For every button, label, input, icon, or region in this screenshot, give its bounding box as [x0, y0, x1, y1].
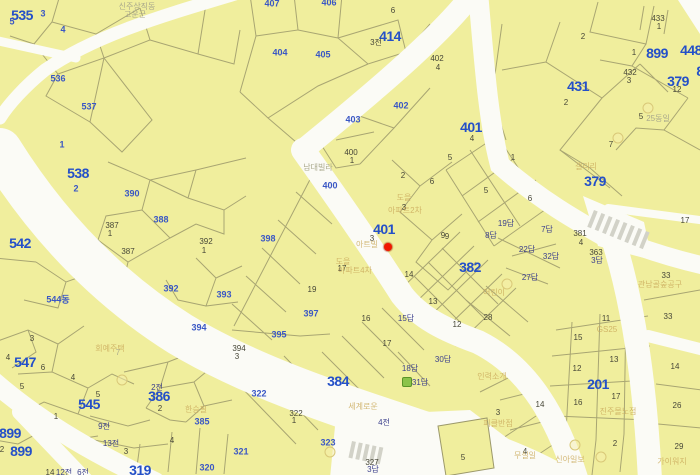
map-label: 15	[574, 334, 583, 342]
map-label: 4전	[378, 419, 390, 427]
map-label: 8	[696, 64, 700, 78]
map-label: 5	[9, 18, 14, 27]
map-label: 2	[158, 405, 162, 413]
map-label: 1	[292, 417, 296, 425]
map-label: 321	[233, 448, 248, 457]
map-label: 도을	[336, 258, 351, 266]
map-label: 9전	[98, 423, 110, 431]
map-label: 3	[40, 10, 45, 19]
map-label: 2전	[151, 384, 163, 392]
map-label: 547	[14, 355, 36, 369]
map-label: 6전	[77, 469, 89, 475]
map-label: 6	[528, 195, 532, 203]
map-label: 406	[321, 0, 336, 8]
poi-circle-icon	[596, 452, 607, 463]
map-label: 2	[581, 33, 585, 41]
map-label: 14	[536, 401, 545, 409]
map-label: 아파트4차	[338, 267, 372, 275]
map-label: 2	[73, 185, 78, 194]
map-label: 392	[163, 285, 178, 294]
map-label: 7	[609, 141, 613, 149]
map-label: 4	[71, 374, 75, 382]
map-label: 4	[170, 437, 174, 445]
map-label: 379	[584, 174, 606, 188]
map-label: 7답	[541, 226, 553, 234]
map-label: 404	[272, 49, 287, 58]
map-label: 1	[54, 413, 58, 421]
map-label: 29	[675, 443, 684, 451]
map-label: 신아일보	[555, 456, 584, 464]
poi-circle-icon	[613, 133, 624, 144]
map-label: 고운군	[124, 11, 146, 19]
map-label: 3	[124, 448, 128, 456]
map-label: 4	[436, 64, 440, 72]
map-label: 31답	[412, 379, 428, 387]
map-label: 414	[379, 29, 401, 43]
map-label: 17	[383, 340, 392, 348]
map-label: 2	[0, 446, 4, 454]
map-label: 관남골숲공구	[638, 281, 682, 289]
map-label: 400	[322, 182, 337, 191]
map-label: 회예주택	[95, 345, 124, 353]
map-label: 544동	[46, 296, 69, 305]
map-label: 899	[646, 46, 668, 60]
map-label: 1	[59, 141, 64, 150]
map-label: 401	[460, 120, 482, 134]
map-label: 한승필	[185, 406, 207, 414]
map-label: 33	[664, 313, 673, 321]
map-label: 17	[612, 393, 621, 401]
map-label: 3답	[367, 466, 379, 474]
map-label: 5	[448, 154, 452, 162]
map-label: 11	[602, 315, 610, 323]
map-label: 32답	[543, 253, 559, 261]
map-label: 899	[0, 426, 21, 440]
map-label: 397	[303, 310, 318, 319]
map-label: 385	[194, 418, 209, 427]
map-label: 4	[6, 354, 10, 362]
map-label: 22답	[519, 246, 535, 254]
map-label: 27답	[522, 274, 538, 282]
map-label: 395	[271, 331, 286, 340]
map-label: 387	[121, 248, 134, 256]
map-label: 어린이	[483, 289, 505, 297]
map-label: 3답	[591, 257, 603, 265]
map-label: 30답	[435, 356, 451, 364]
map-label: 16	[362, 315, 371, 323]
map-label: 5	[639, 113, 643, 121]
map-label: 4	[579, 239, 583, 247]
map-label: 가이워지	[657, 458, 686, 466]
map-label: 12	[573, 365, 582, 373]
map-label: 392	[199, 238, 212, 246]
map-label: 14	[671, 363, 680, 371]
map-label: 382	[459, 260, 481, 274]
map-label: 아트빌	[356, 241, 378, 249]
map-label: 5	[96, 391, 100, 399]
map-label: 피클반점	[483, 420, 512, 428]
poi-circle-icon	[325, 447, 336, 458]
map-label: 무실일	[514, 452, 536, 460]
map-label: 431	[567, 79, 589, 93]
map-label: 388	[153, 216, 168, 225]
map-label: 537	[81, 103, 96, 112]
map-label: 1	[657, 23, 661, 31]
map-label: 6	[391, 7, 395, 15]
map-label: 세계로운	[348, 403, 377, 411]
map-label: 201	[587, 377, 609, 391]
map-label: 3	[496, 409, 500, 417]
map-label: 6	[430, 178, 434, 186]
map-label: 3	[235, 353, 239, 361]
map-label: 3	[627, 77, 631, 85]
green-poi-icon	[402, 377, 412, 387]
map-label: 4	[60, 26, 65, 35]
map-label: 402	[393, 102, 408, 111]
map-label: 398	[260, 235, 275, 244]
map-label: 19	[308, 286, 317, 294]
map-label: 13	[429, 298, 438, 306]
map-label: 5	[20, 383, 24, 391]
map-label: 25동일	[646, 115, 670, 123]
map-label: 14	[46, 469, 55, 475]
label-layer: 5355385425475458998993863193844144014014…	[0, 0, 700, 475]
map-label: 6	[41, 364, 45, 372]
map-label: 2	[401, 172, 405, 180]
map-label: 4	[470, 135, 474, 143]
map-label: 9	[445, 233, 449, 241]
map-label: 9	[441, 232, 445, 240]
map-label: 16	[574, 399, 583, 407]
map-label: 아파트2차	[388, 207, 422, 215]
map-label: 1	[108, 230, 112, 238]
map-label: GS25	[597, 326, 617, 334]
map-label: 402	[430, 55, 443, 63]
map-label: 322	[251, 390, 266, 399]
map-label: 도을	[397, 194, 412, 202]
map-label: 899	[10, 444, 32, 458]
map-label: 26	[673, 402, 682, 410]
map-label: 536	[50, 75, 65, 84]
map-label: 545	[78, 397, 100, 411]
map-label: 진주몰노점	[600, 408, 637, 416]
map-label: 14	[405, 271, 414, 279]
map-label: 인력소개	[477, 373, 506, 381]
map-label: 33	[662, 272, 671, 280]
map-label: 1	[202, 247, 206, 255]
map-label: 2	[613, 440, 617, 448]
map-label: 405	[315, 51, 330, 60]
map-label: 5	[484, 187, 488, 195]
map-label: 12	[673, 86, 682, 94]
map-label: 390	[124, 190, 139, 199]
map-label: 542	[9, 236, 31, 250]
map-label: 3전	[370, 39, 382, 47]
map-label: 538	[67, 166, 89, 180]
map-label: 1	[350, 157, 354, 165]
map-label: 5	[461, 454, 465, 462]
map-label: 19답	[498, 220, 514, 228]
map-label: 319	[129, 463, 151, 475]
map-label: 13전	[103, 440, 119, 448]
poi-circle-icon	[643, 103, 654, 114]
map-label: 28	[484, 314, 493, 322]
poi-circle-icon	[502, 279, 513, 290]
map-label: 407	[264, 0, 279, 9]
map-label: 2	[564, 99, 568, 107]
map-label: 1	[632, 49, 636, 57]
map-label: 320	[199, 464, 214, 473]
map-label: 403	[345, 116, 360, 125]
map-label: 18답	[402, 365, 418, 373]
map-label: 384	[327, 374, 349, 388]
cadastral-map[interactable]: 5355385425475458998993863193844144014014…	[0, 0, 700, 475]
map-label: 13	[610, 356, 619, 364]
poi-circle-icon	[570, 440, 581, 451]
map-label: 394	[191, 324, 206, 333]
map-label: 12	[453, 321, 462, 329]
map-label: 12전	[56, 469, 72, 475]
map-label: 갤리리	[575, 163, 597, 171]
map-label: 448	[680, 43, 700, 57]
map-label: 남대빌라	[303, 164, 332, 172]
selected-parcel-marker	[384, 243, 392, 251]
map-label: 1	[511, 154, 515, 162]
map-label: 401	[373, 222, 395, 236]
map-label: 15답	[398, 315, 414, 323]
map-label: 3	[30, 335, 34, 343]
map-label: 381	[573, 230, 586, 238]
map-label: 393	[216, 291, 231, 300]
poi-circle-icon	[117, 375, 128, 386]
map-label: 17	[681, 217, 690, 225]
map-label: 8답	[485, 232, 497, 240]
